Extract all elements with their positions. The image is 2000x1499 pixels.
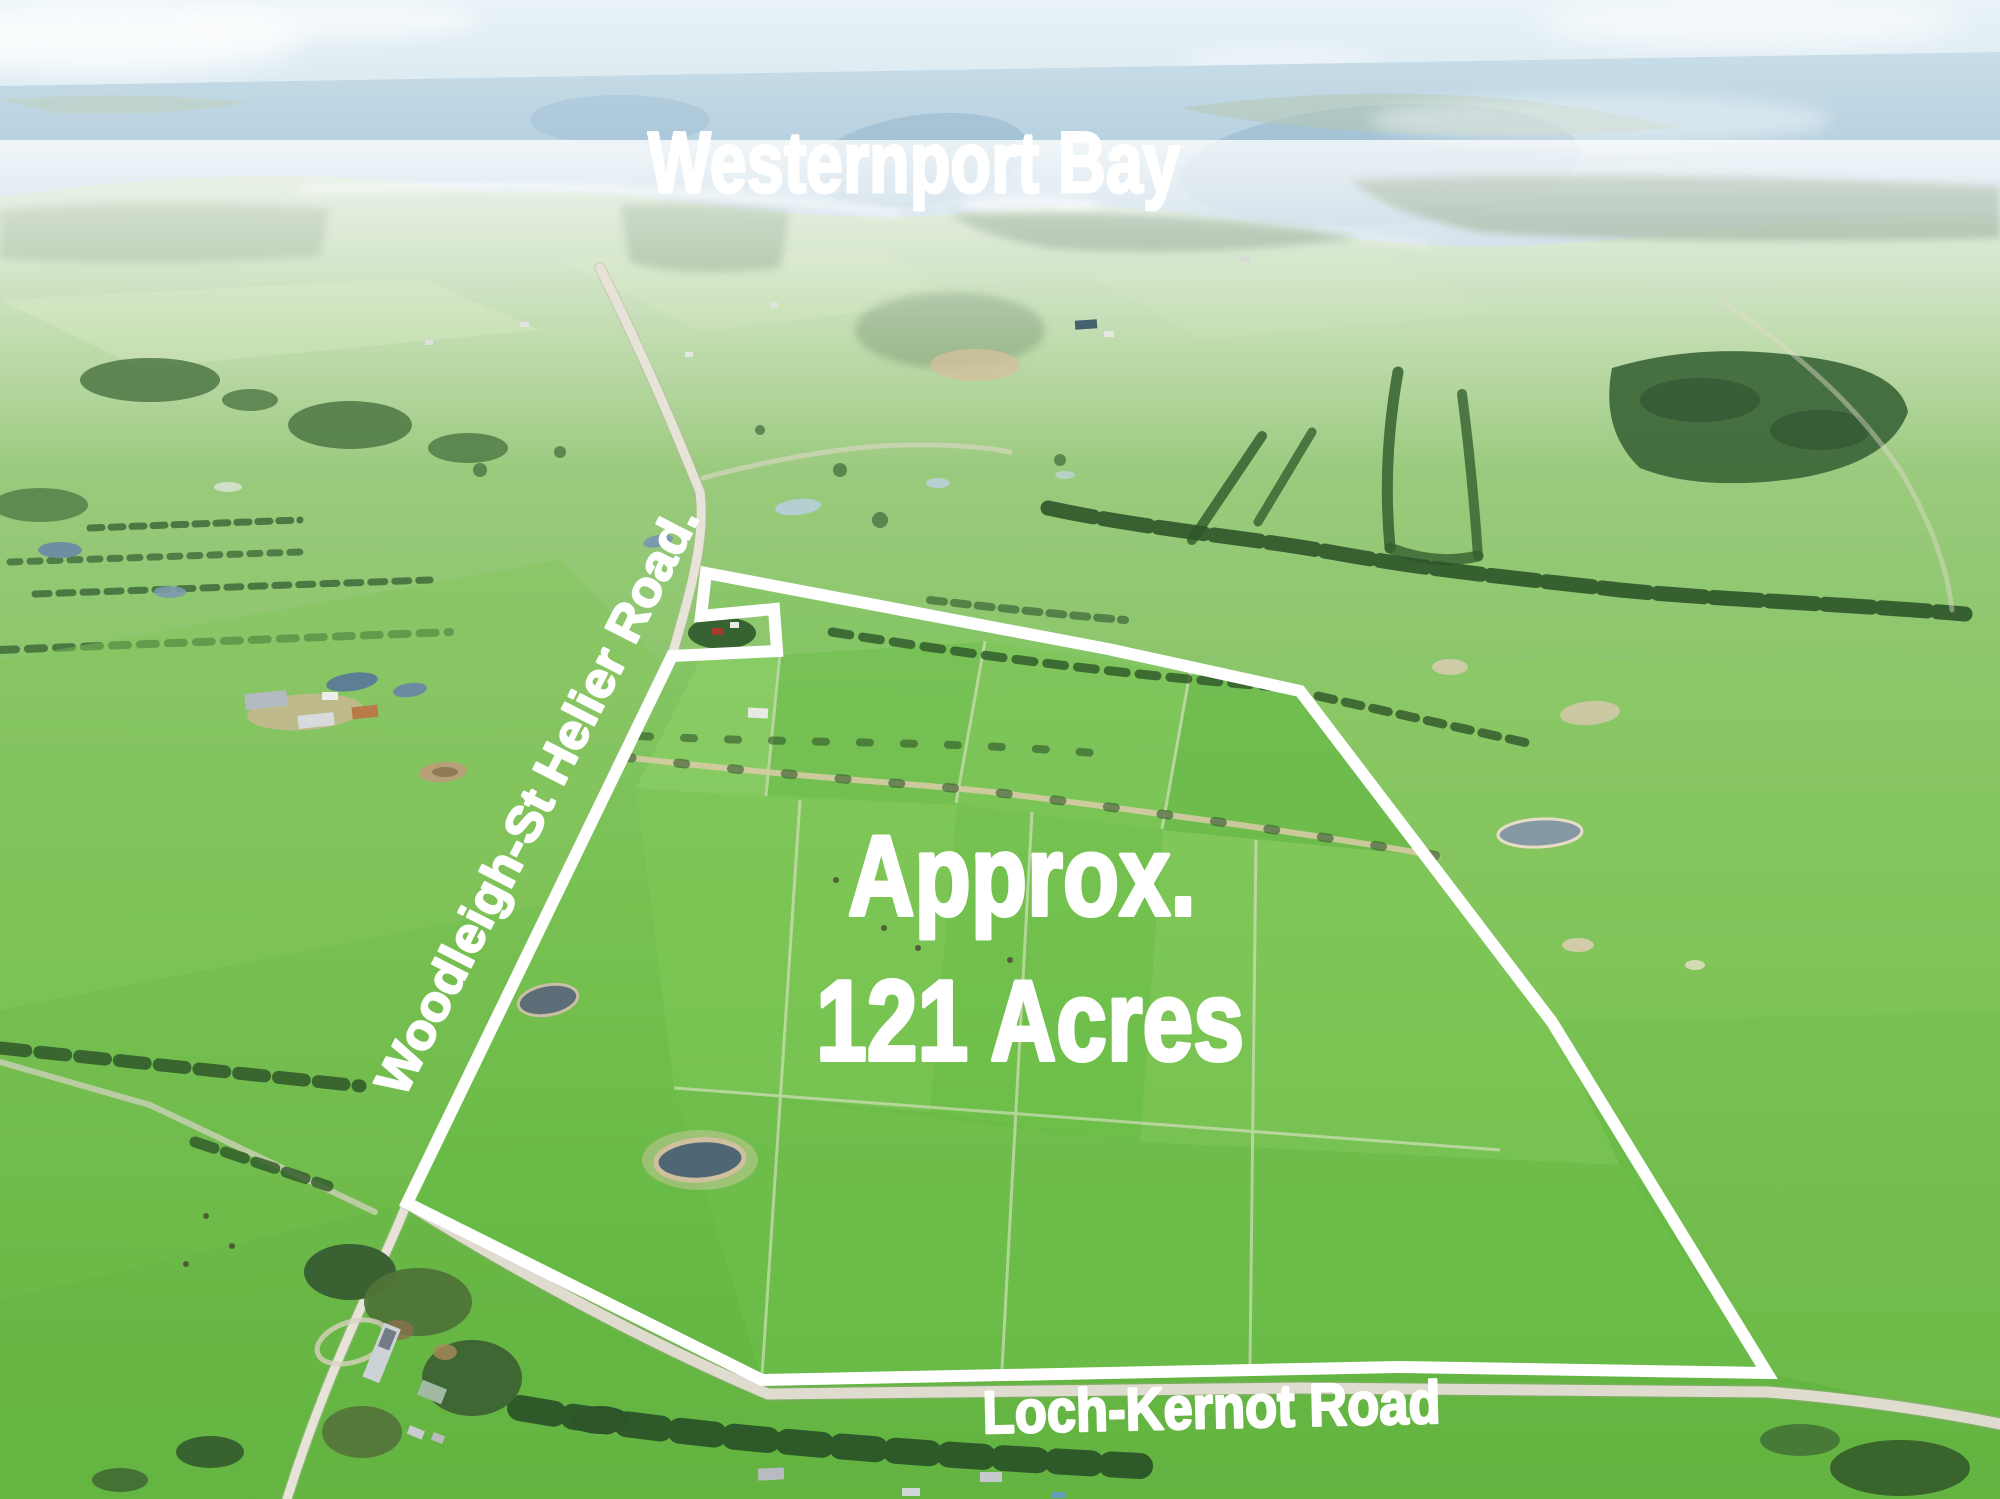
aerial-photo: Westernport Bay Approx. 121 Acres Woodle…: [0, 0, 2000, 1499]
house-excluded-parcel: [712, 628, 724, 635]
gravel-area: [930, 349, 1020, 381]
pool: [1052, 1492, 1066, 1498]
area-label-line1: Approx.: [848, 813, 1196, 940]
bay-label: Westernport Bay: [648, 115, 1180, 211]
road-label-loch-kernot: Loch-Kernot Road: [982, 1369, 1441, 1446]
aerial-photo-canvas: Westernport Bay Approx. 121 Acres Woodle…: [0, 0, 2000, 1499]
area-label-line2: 121 Acres: [816, 958, 1244, 1085]
cloud: [180, 0, 480, 40]
shed: [748, 707, 768, 718]
